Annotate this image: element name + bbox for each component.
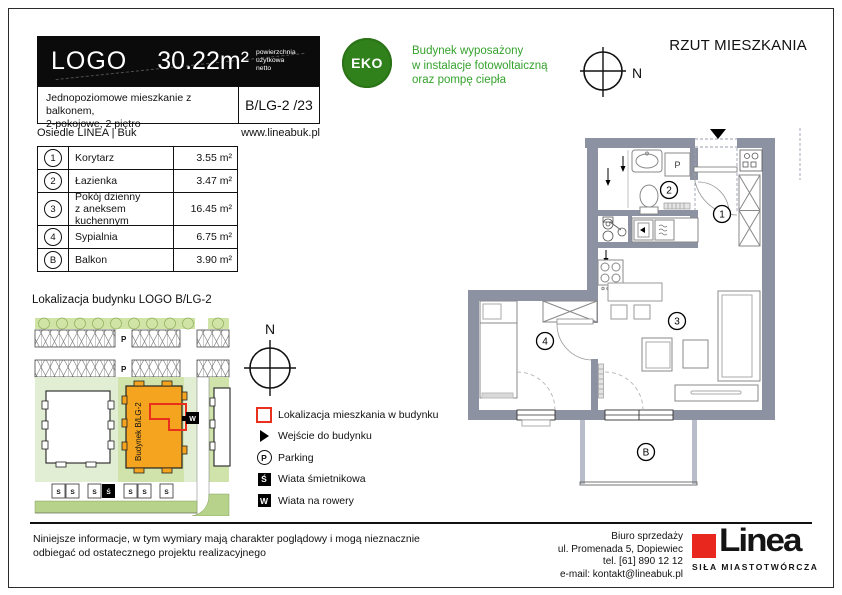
room-number-badge: B: [44, 251, 62, 269]
legend-label: Wiata śmietnikowa: [274, 473, 366, 485]
description-line1: Jednopoziomowe mieszkanie z balkonem,: [46, 92, 191, 117]
table-row: 1 Korytarz 3.55 m²: [38, 147, 237, 170]
washbasin: [632, 150, 662, 172]
bathroom-radiator: [664, 203, 690, 209]
room-area: 6.75 m²: [173, 226, 237, 248]
spot-label: S: [128, 489, 133, 496]
room-name: Pokój dzienny: [75, 191, 140, 203]
apartment-description: Jednopoziomowe mieszkanie z balkonem, 2-…: [38, 87, 238, 123]
kitchen-sink: [634, 220, 653, 240]
spot-label: S: [164, 489, 169, 496]
plan-room-3-badge: 3: [674, 317, 680, 328]
coffee-table: [642, 338, 672, 371]
plan-balcony-badge: B: [643, 448, 650, 459]
washing-machine: P: [665, 153, 690, 176]
room-area: 3.90 m²: [173, 249, 237, 271]
office-email[interactable]: e-mail: kontakt@lineabuk.pl: [560, 569, 683, 580]
room-number-badge: 1: [44, 149, 62, 167]
corridor-wardrobe: [739, 175, 760, 246]
eco-note-line3: oraz pompę ciepła: [412, 74, 506, 86]
legend-label: Wiata na rowery: [274, 495, 354, 507]
office-address: ul. Promenada 5, Dopiewiec: [558, 544, 683, 555]
bedroom-door: [557, 319, 593, 360]
bike-shed-icon: W: [258, 494, 271, 507]
floor-plan: P: [456, 118, 840, 502]
logo-red-square: [692, 534, 716, 558]
spot-label: S: [56, 489, 61, 496]
legend-label: Lokalizacja mieszkania w budynku: [274, 409, 439, 421]
disclaimer: Niniejsze informacje, w tym wymiary mają…: [33, 532, 420, 560]
sofa: [718, 291, 760, 381]
office-phone: tel. [61] 890 12 12: [603, 556, 683, 567]
site-map: P P: [32, 316, 232, 516]
parking-icon: P: [257, 450, 272, 465]
legend-label: Parking: [274, 452, 314, 464]
header-meta-row: Osiedle LINEA | Buk www.lineabuk.pl: [37, 127, 320, 139]
kitchen-counter: [632, 218, 698, 242]
building-entrance-icon: [260, 430, 269, 442]
parking-label: P: [121, 335, 127, 344]
table-row: B Balkon 3.90 m²: [38, 249, 237, 271]
legend-item: P Parking: [254, 447, 439, 469]
tv-stand: [675, 385, 758, 401]
area-value: 30.22: [157, 47, 220, 75]
footer-divider: [30, 522, 812, 524]
room-name: Balkon: [69, 254, 173, 266]
room-name: Korytarz: [69, 152, 173, 164]
trash-shed-icon: Ś: [258, 473, 271, 486]
room-area: 3.55 m²: [173, 147, 237, 169]
apartment-description-box: Jednopoziomowe mieszkanie z balkonem, 2-…: [37, 86, 320, 124]
plan-room-4-badge: 4: [542, 337, 548, 348]
legend-label: Wejście do budynku: [274, 430, 372, 442]
apartment-card-page: LOGO 30.22m² powierzchnia użytkowa netto…: [0, 0, 842, 595]
legend-item: Lokalizacja mieszkania w budynku: [254, 404, 439, 426]
bike-shed-letter: W: [189, 416, 196, 423]
washer-label: P: [674, 160, 680, 170]
bedroom-window: [517, 372, 555, 426]
table-row: 4 Sypialnia 6.75 m²: [38, 226, 237, 249]
logo-tagline: SIŁA MIASTOTWÓRCZA: [692, 562, 819, 572]
spot-label: S: [70, 489, 75, 496]
room-name: Sypialnia: [69, 231, 173, 243]
spot-label: S: [142, 489, 147, 496]
room-name-line2: z aneksem kuchennym: [75, 203, 129, 227]
logo-wordmark: Linea: [719, 523, 800, 560]
estate-name: Osiedle LINEA | Buk: [37, 127, 136, 139]
plan-compass-icon: N: [578, 42, 663, 104]
disclaimer-line1: Niniejsze informacje, w tym wymiary mają…: [33, 533, 420, 545]
room-name: Łazienka: [69, 175, 173, 187]
disclaimer-line2: odbiegać od ostatecznego projektu realiz…: [33, 547, 266, 559]
room-number-badge: 4: [44, 228, 62, 246]
bed: [480, 301, 517, 398]
table-row: 2 Łazienka 3.47 m²: [38, 170, 237, 193]
legend-item: W Wiata na rowery: [254, 490, 439, 512]
site-map-title: Lokalizacja budynku LOGO B/LG-2: [32, 294, 212, 306]
sales-office-info: Biuro sprzedaży ul. Promenada 5, Dopiewi…: [455, 531, 683, 581]
dishwasher: [655, 220, 674, 240]
entrance-arrow-icon: [710, 129, 726, 139]
technical-closet: [603, 217, 626, 241]
plan-room-2-badge: 2: [666, 186, 672, 197]
armchair: [683, 340, 708, 368]
legend-item: Wejście do budynku: [254, 426, 439, 448]
table-row: 3 Pokój dziennyz aneksem kuchennym 16.45…: [38, 193, 237, 226]
room-number-badge: 3: [44, 200, 62, 218]
header-bar: LOGO 30.22m² powierzchnia użytkowa netto: [37, 36, 320, 86]
road-vertical: [197, 377, 209, 516]
stool: [611, 305, 627, 319]
eco-note: Budynek wyposażony w instalacje fotowolt…: [412, 44, 548, 88]
trash-shed-letter: Ś: [106, 487, 111, 496]
spot-label: S: [92, 489, 97, 496]
eco-note-line1: Budynek wyposażony: [412, 45, 523, 57]
stool: [634, 305, 650, 319]
subject-building-label: Budynek B/LG-2: [134, 402, 143, 461]
eco-note-line2: w instalacje fotowoltaiczną: [412, 60, 548, 72]
apartment-location-icon: [256, 407, 272, 423]
electrical-box: [740, 150, 762, 171]
unit-code: B/LG-2 /23: [238, 87, 319, 123]
building-left: [42, 391, 114, 467]
legend-item: Ś Wiata śmietnikowa: [254, 469, 439, 491]
office-title: Biuro sprzedaży: [611, 531, 683, 542]
room-area: 16.45 m²: [173, 193, 237, 225]
map-legend: Lokalizacja mieszkania w budynku Wejście…: [254, 404, 439, 512]
compass-n-label: N: [265, 321, 275, 337]
room-number-badge: 2: [44, 172, 62, 190]
toilet: [640, 185, 658, 214]
living-radiator: [599, 364, 604, 398]
compass-n-label: N: [632, 65, 642, 81]
parking-row-south: P: [35, 360, 229, 377]
room-table: 1 Korytarz 3.55 m² 2 Łazienka 3.47 m² 3 …: [37, 146, 238, 272]
kitchen-island: [608, 283, 662, 319]
parking-label: P: [121, 365, 127, 374]
website-link[interactable]: www.lineabuk.pl: [241, 127, 320, 139]
area-caption: powierzchnia użytkowa netto: [249, 49, 320, 73]
area-caption-line3: netto: [256, 65, 271, 72]
plan-room-1-badge: 1: [719, 210, 725, 221]
site-compass-icon: N: [240, 320, 302, 400]
eko-badge: EKO: [342, 38, 392, 88]
living-window-door: [605, 372, 673, 420]
parking-row-north: P: [35, 330, 229, 347]
room-area: 3.47 m²: [173, 170, 237, 192]
developer-logo-text: LOGO: [37, 47, 127, 76]
